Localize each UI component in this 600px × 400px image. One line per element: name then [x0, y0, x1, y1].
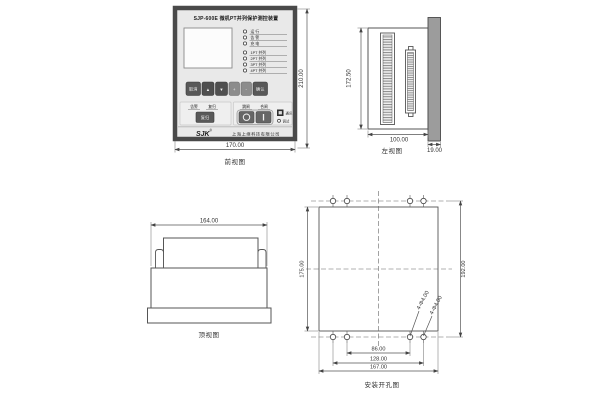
- trip-label: 跳闸: [242, 104, 250, 109]
- inner-hole-span-dim-label: 86.00: [372, 347, 386, 353]
- confirm-key-label: 确认: [256, 86, 265, 93]
- drawing-sheet: SJP-600E 微机PT并列保护测控装置 运 行 告 警 充 电 1PT 并列…: [0, 0, 600, 400]
- close-label: 合闸: [260, 104, 268, 109]
- led-icon: [243, 51, 246, 54]
- rear-case: [164, 238, 259, 268]
- cutout-view: 175.00 192.00 86.00 128.00 167.00: [300, 191, 468, 389]
- brand-logo: SJK: [196, 131, 211, 138]
- cutout-width-dim-label: 167.00: [370, 365, 387, 371]
- front-bezel: [148, 308, 272, 323]
- mounting-panel-plate: [428, 18, 441, 142]
- function-led-label: 4PT 并列: [251, 68, 267, 73]
- left-spring-clip: [156, 250, 164, 269]
- status-led-label: 告 警: [251, 35, 260, 40]
- side-view: 172.50 100.00 19.00 左视图: [347, 18, 443, 156]
- status-led-label: 充 电: [251, 41, 260, 46]
- led-icon: [243, 36, 246, 39]
- key-row: 取消 ▲ ▼ + - 确认: [186, 82, 268, 96]
- mounting-hole: [330, 198, 335, 203]
- hole-note-inner-label: 4-Φ4.00: [416, 290, 431, 311]
- hole-note-outer-leader: 4-Φ4.00: [424, 295, 444, 336]
- side-view-caption: 左视图: [382, 146, 403, 155]
- mounting-hole: [344, 334, 349, 339]
- panel-thickness-dimension: 19.00: [427, 142, 443, 154]
- led-icon: [278, 119, 281, 122]
- reset-label: 复归: [208, 104, 216, 109]
- front-height-dim-label: 210.00: [299, 69, 305, 88]
- led-icon: [243, 30, 246, 33]
- hole-note-outer-label: 4-Φ4.00: [429, 295, 444, 316]
- function-led-label: 2PT 并列: [251, 56, 267, 61]
- cutout-height-dim-label: 175.00: [300, 260, 306, 277]
- top-view-caption: 顶视图: [199, 330, 220, 339]
- status-led-label: 运 行: [251, 29, 260, 34]
- front-width-dim-label: 170.00: [226, 143, 245, 149]
- mounting-hole: [344, 198, 349, 203]
- connector-tab-bottom: [409, 113, 414, 117]
- switch-panel: 跳闸 合闸 通讯 调试: [234, 102, 293, 125]
- front-height-dimension: 210.00: [298, 9, 311, 148]
- led-icon: [243, 69, 246, 72]
- panel-thickness-dim-label: 19.00: [427, 148, 443, 154]
- right-spring-clip: [258, 250, 266, 269]
- outline-drawing: SJP-600E 微机PT并列保护测控装置 运 行 告 警 充 电 1PT 并列…: [0, 0, 600, 400]
- reset-key-label: 复归: [201, 114, 209, 121]
- cutout-view-caption: 安装开孔图: [365, 380, 400, 389]
- alarm-label: 告警: [190, 104, 198, 109]
- hole-note-inner-leader: 4-Φ4.00: [410, 290, 431, 336]
- side-depth-dimension: 100.00: [368, 131, 428, 144]
- mounting-hole: [407, 198, 412, 203]
- led-icon: [243, 63, 246, 66]
- mounting-hole: [330, 334, 335, 339]
- top-view: 164.00 顶视图: [148, 219, 272, 340]
- comm-port-inner-icon: [279, 111, 282, 114]
- cancel-key-label: 取消: [189, 86, 197, 93]
- trip-key: [239, 112, 254, 124]
- outer-hole-span-dim-label: 128.00: [370, 357, 387, 363]
- down-arrow-icon: ▼: [219, 87, 223, 92]
- connector-pins: [408, 53, 414, 111]
- led-icon: [243, 57, 246, 60]
- side-depth-dim-label: 100.00: [390, 138, 409, 144]
- function-led-label: 3PT 并列: [251, 62, 267, 67]
- side-height-dim-label: 172.50: [347, 69, 353, 88]
- top-width-dim-label: 164.00: [200, 219, 219, 225]
- led-icon: [243, 42, 246, 45]
- comm-label: 通讯: [286, 111, 293, 116]
- mounting-hole: [421, 198, 426, 203]
- front-view-caption: 前视图: [225, 157, 246, 166]
- debug-label: 调试: [283, 119, 290, 124]
- device-title: SJP-600E 微机PT并列保护测控装置: [194, 15, 279, 22]
- side-height-dimension: 172.50: [347, 28, 368, 129]
- front-width-dimension: 170.00: [175, 141, 295, 153]
- function-led-label: 1PT 并列: [251, 50, 267, 55]
- brand-registered-mark: ®: [210, 129, 213, 133]
- mid-case: [151, 268, 267, 308]
- company-name: 上海上继科技有限公司: [232, 131, 280, 138]
- hole-span-vertical-dim-label: 192.00: [461, 260, 467, 277]
- connector-tab-top: [409, 47, 414, 51]
- side-body: [368, 28, 428, 129]
- terminal-block-contacts: [383, 35, 392, 123]
- front-view: SJP-600E 微机PT并列保护测控装置 运 行 告 警 充 电 1PT 并列…: [175, 8, 310, 166]
- signal-panel: 告警 复归 复归: [180, 102, 231, 125]
- lcd-screen: [184, 28, 232, 68]
- up-arrow-icon: ▲: [206, 87, 210, 92]
